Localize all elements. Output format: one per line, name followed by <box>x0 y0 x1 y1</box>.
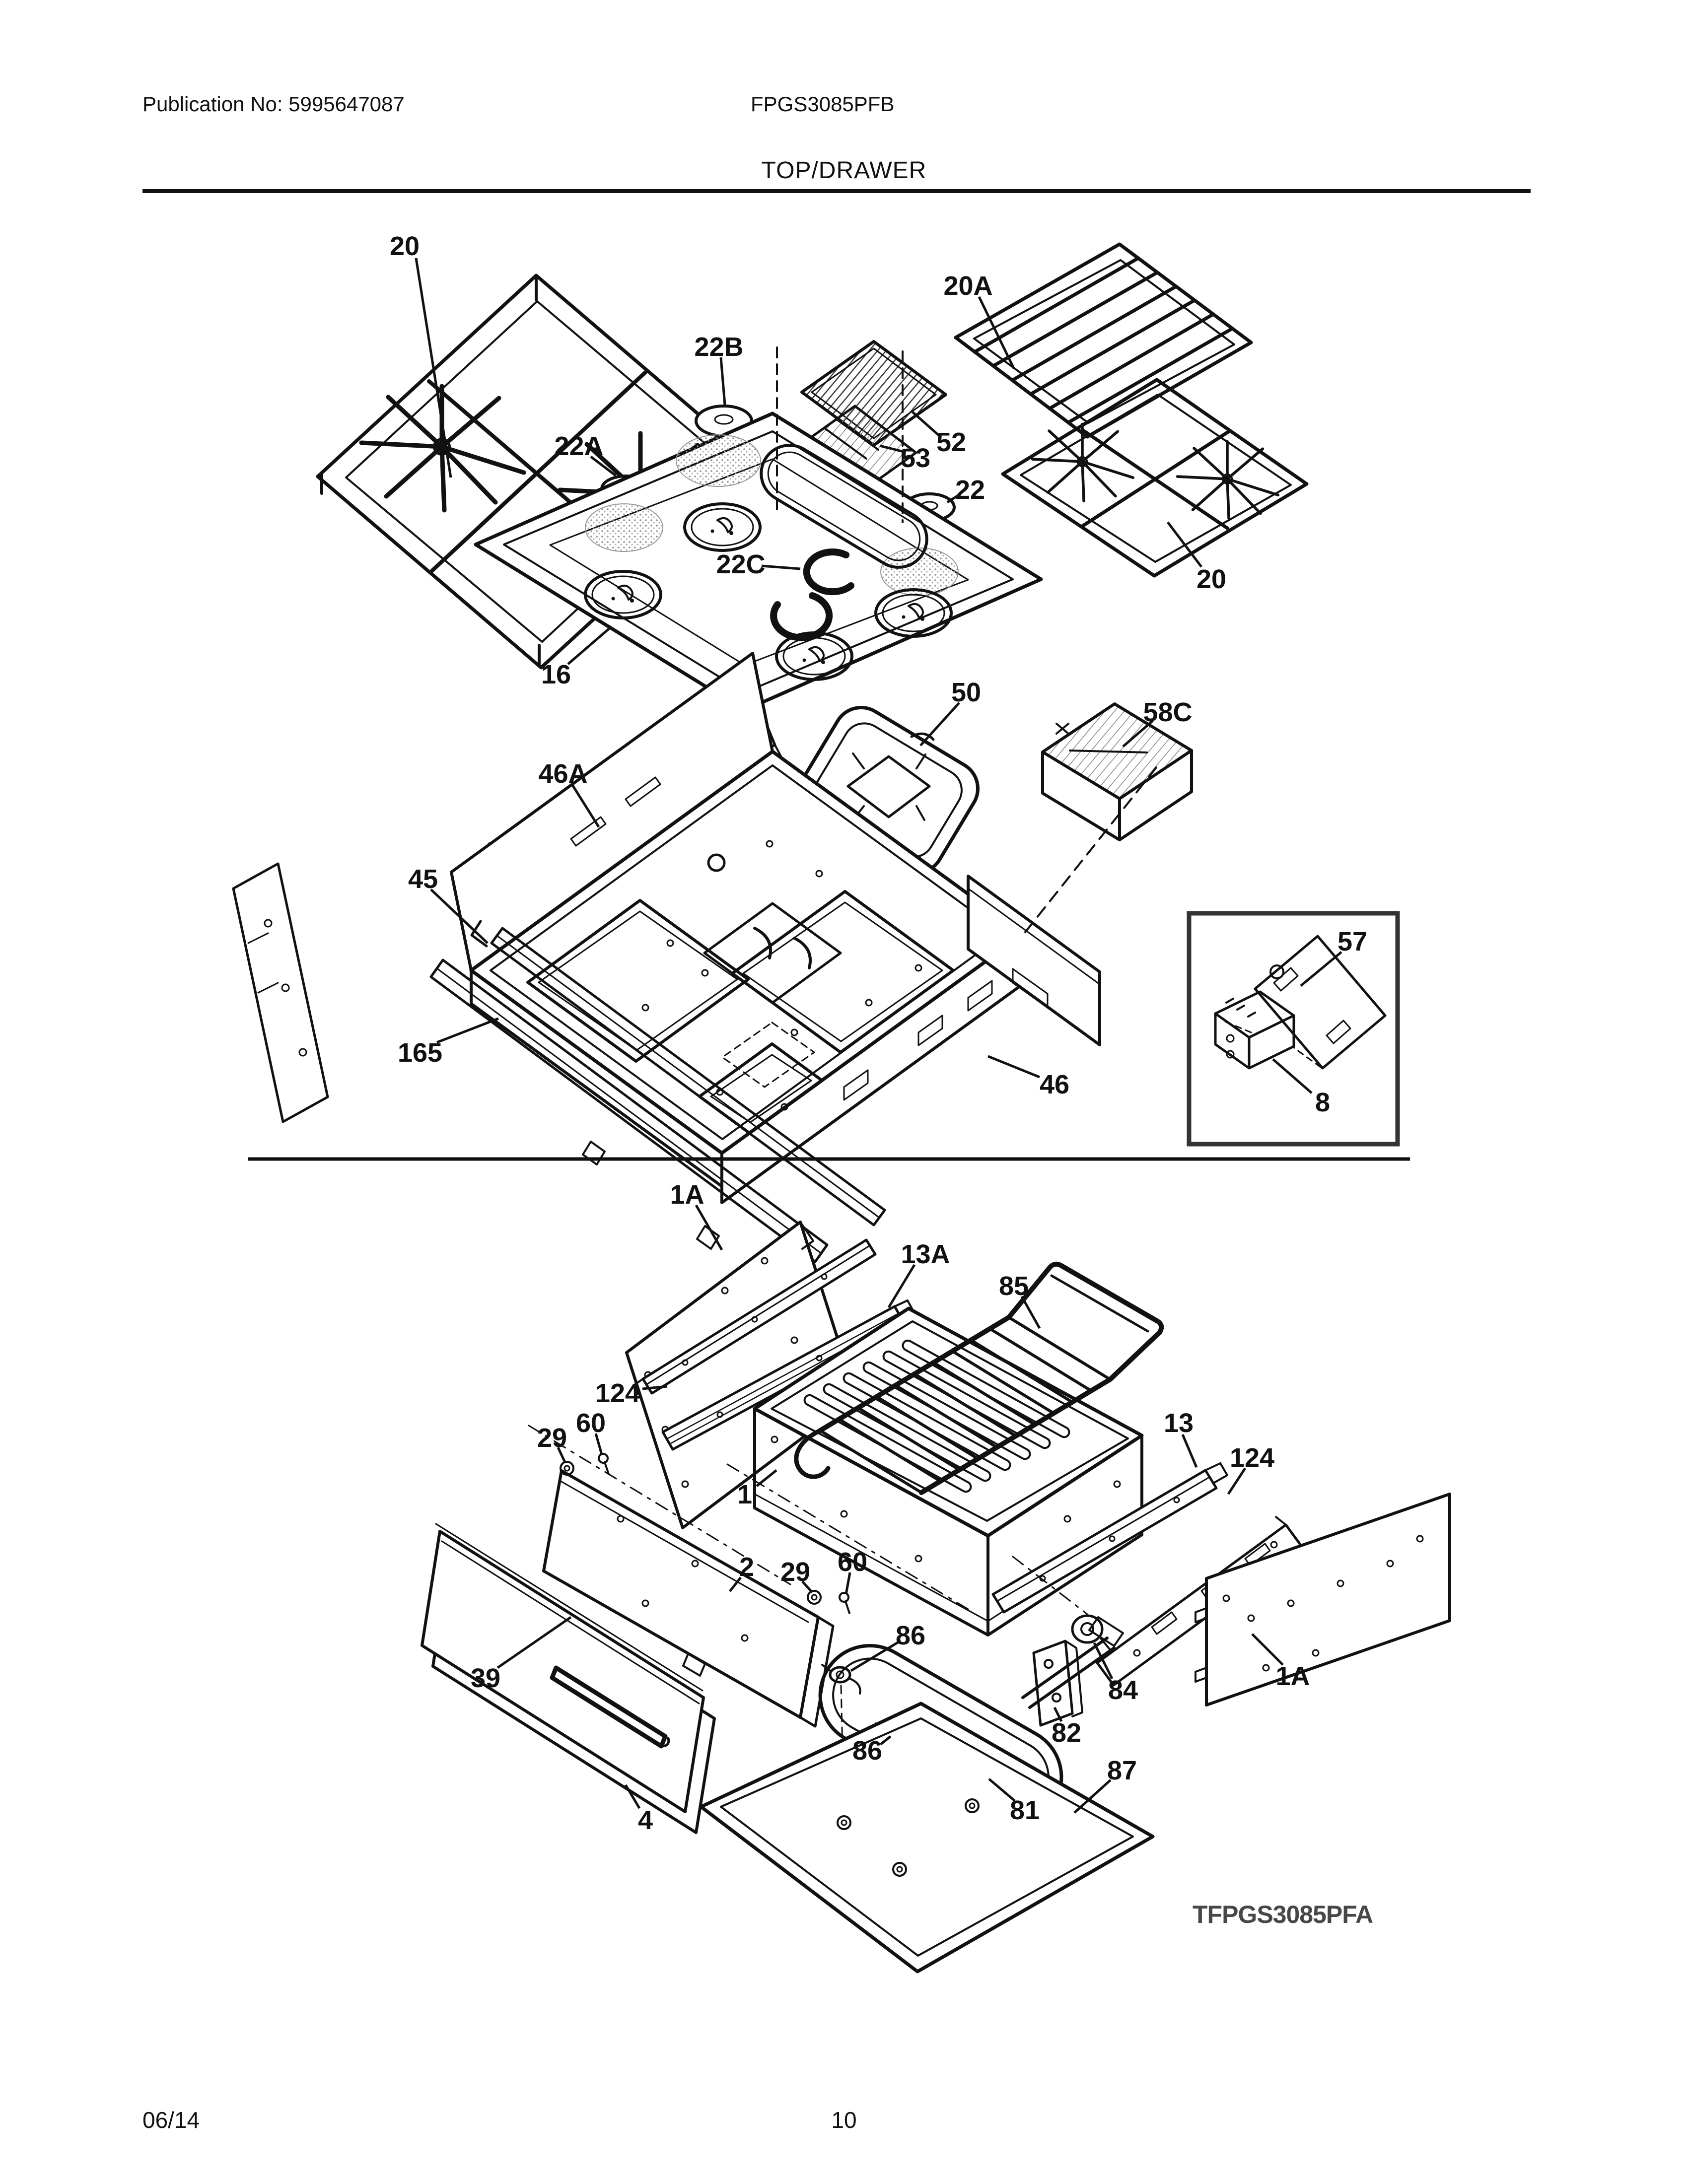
callout-leader-52 <box>913 412 939 436</box>
part-callout-86: 86 <box>852 1736 882 1766</box>
part-callout-46A: 46A <box>538 759 587 789</box>
callout-leader-16 <box>568 626 612 664</box>
part-callout-165: 165 <box>398 1038 442 1068</box>
part-burner-box-46 <box>451 653 1157 1203</box>
part-callout-52: 52 <box>936 427 966 457</box>
part-callout-58C: 58C <box>1143 697 1192 727</box>
part-callout-57: 57 <box>1337 927 1367 956</box>
part-callout-29: 29 <box>537 1423 567 1453</box>
part-callout-1A: 1A <box>1275 1661 1310 1691</box>
part-callout-39: 39 <box>471 1663 500 1693</box>
part-callout-60: 60 <box>838 1547 867 1577</box>
part-callout-50: 50 <box>951 678 981 707</box>
part-callout-53: 53 <box>901 443 930 473</box>
part-callout-84: 84 <box>1108 1675 1138 1705</box>
callout-leader-85 <box>1022 1297 1040 1328</box>
part-bottom-panel-87 <box>701 1704 1153 1972</box>
callout-leader-46 <box>988 1056 1040 1077</box>
diagram-canvas: 2020A22B22A52532222C16205058C46A45165465… <box>0 0 1688 2184</box>
part-callout-86: 86 <box>896 1621 925 1650</box>
callout-leader-20 <box>1168 522 1201 567</box>
callout-leader-1A <box>696 1205 722 1250</box>
part-callout-22B: 22B <box>694 332 743 362</box>
part-callout-46: 46 <box>1040 1070 1069 1099</box>
part-callout-20A: 20A <box>943 271 992 301</box>
callout-leader-165 <box>437 1019 498 1042</box>
part-callout-22A: 22A <box>554 431 603 461</box>
callout-leader-1 <box>757 1470 776 1486</box>
part-callout-16: 16 <box>541 660 571 689</box>
part-rear-panel-1A-right <box>1196 1494 1450 1705</box>
part-callout-20: 20 <box>1196 564 1226 594</box>
part-callout-1A: 1A <box>670 1180 704 1210</box>
part-callout-20: 20 <box>390 231 420 261</box>
part-callout-81: 81 <box>1010 1795 1040 1825</box>
part-callout-22C: 22C <box>716 549 765 579</box>
callout-leader-22B <box>721 357 725 405</box>
part-callout-1: 1 <box>737 1480 752 1509</box>
part-callout-4: 4 <box>638 1805 653 1835</box>
part-callout-29: 29 <box>780 1557 810 1587</box>
part-callout-8: 8 <box>1315 1088 1330 1117</box>
callout-leader-13 <box>1183 1434 1196 1467</box>
part-callout-60: 60 <box>576 1408 606 1438</box>
part-callout-85: 85 <box>999 1271 1029 1301</box>
part-callout-2: 2 <box>739 1552 754 1582</box>
part-callout-124: 124 <box>595 1378 640 1408</box>
part-callout-87: 87 <box>1107 1756 1137 1785</box>
part-callout-82: 82 <box>1052 1718 1081 1748</box>
diagram-watermark: TFPGS3085PFA <box>1193 1900 1373 1929</box>
callout-leader-50 <box>920 703 959 746</box>
part-callout-13: 13 <box>1164 1408 1194 1438</box>
part-maintop-16 <box>476 347 1041 710</box>
part-callout-45: 45 <box>408 864 438 894</box>
part-callout-124: 124 <box>1230 1443 1274 1473</box>
part-callout-13A: 13A <box>901 1239 950 1269</box>
callout-leader-13A <box>889 1265 914 1307</box>
manual-page: Publication No: 5995647087 FPGS3085PFB T… <box>0 0 1688 2184</box>
footer-page-number: 10 <box>0 2107 1688 2133</box>
part-callout-22: 22 <box>955 475 985 505</box>
